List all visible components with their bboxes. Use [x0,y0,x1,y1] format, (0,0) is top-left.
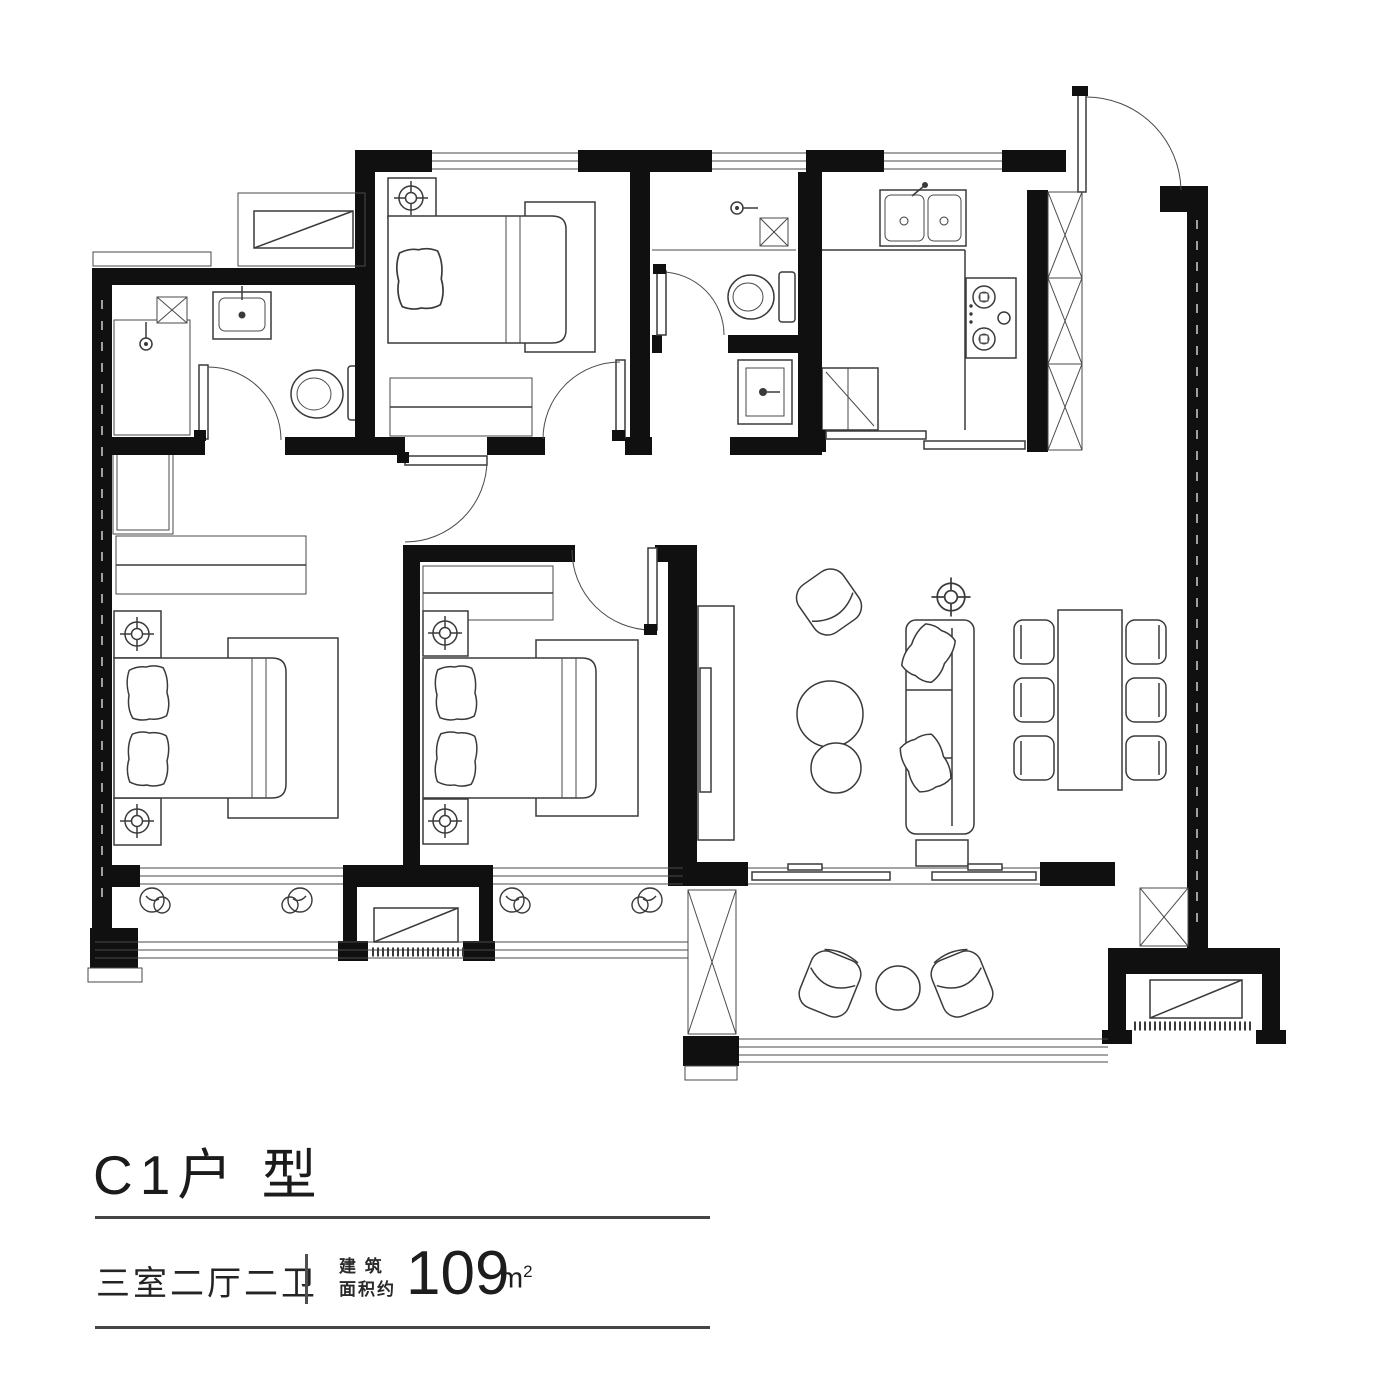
floorplan-page: C1户 型 三室二厅二卫 建 筑 面积约 109 m2 [0,0,1400,1395]
kitchen-sink [880,182,966,246]
floorplan-drawing [0,0,1400,1110]
shower-area [114,320,190,435]
floorplan-svg [0,0,1400,1110]
tv [700,668,711,792]
duct-shaft [688,890,736,1034]
coffee-table-small [811,743,861,793]
dining-set [1014,610,1166,790]
divider-line [95,1216,710,1219]
balcony-table [876,966,920,1010]
duct-shaft [1140,888,1188,946]
side-table [916,840,968,866]
room-layout-label: 三室二厅二卫 [96,1256,318,1305]
duct-shaft [760,218,788,246]
vertical-divider [305,1254,308,1304]
coffee-table [797,681,863,747]
dining-table [1058,610,1122,790]
area-unit: m2 [499,1262,533,1296]
sofa [896,620,974,834]
area-value: 109 [406,1238,509,1309]
duct-shaft [1048,192,1082,450]
stove [966,278,1016,358]
plan-title: C1户 型 [93,1130,324,1210]
kitchen-cabinet [822,368,878,430]
duct-shaft [157,297,187,323]
toilet [291,366,365,420]
area-prefix-label: 建 筑 面积约 [339,1255,396,1301]
toilet [728,272,795,322]
divider-line [95,1326,710,1329]
hallway-vanity [738,360,792,424]
